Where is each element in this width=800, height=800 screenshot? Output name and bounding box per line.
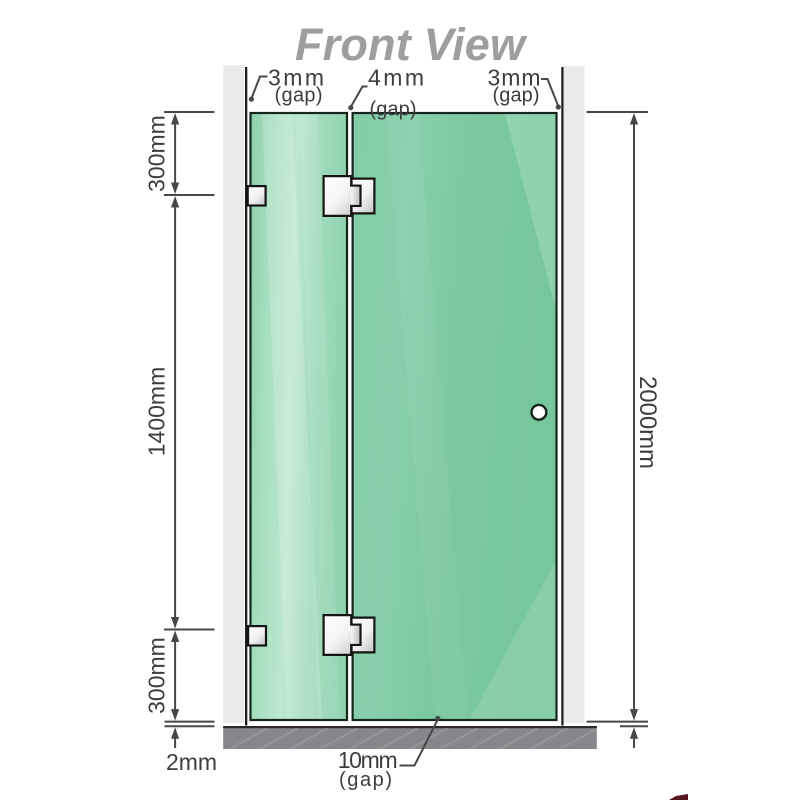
svg-text:(gap): (gap) <box>275 85 323 107</box>
svg-text:2mm: 2mm <box>166 749 217 775</box>
svg-text:(gap): (gap) <box>370 99 417 121</box>
svg-text:(gap): (gap) <box>493 85 540 107</box>
svg-text:1400mm: 1400mm <box>144 367 170 456</box>
svg-text:2000mm: 2000mm <box>634 376 661 469</box>
svg-text:4mm: 4mm <box>368 65 424 91</box>
svg-text:Front View: Front View <box>295 19 528 70</box>
svg-text:300mm: 300mm <box>144 637 170 714</box>
svg-text:300mm: 300mm <box>144 115 170 192</box>
